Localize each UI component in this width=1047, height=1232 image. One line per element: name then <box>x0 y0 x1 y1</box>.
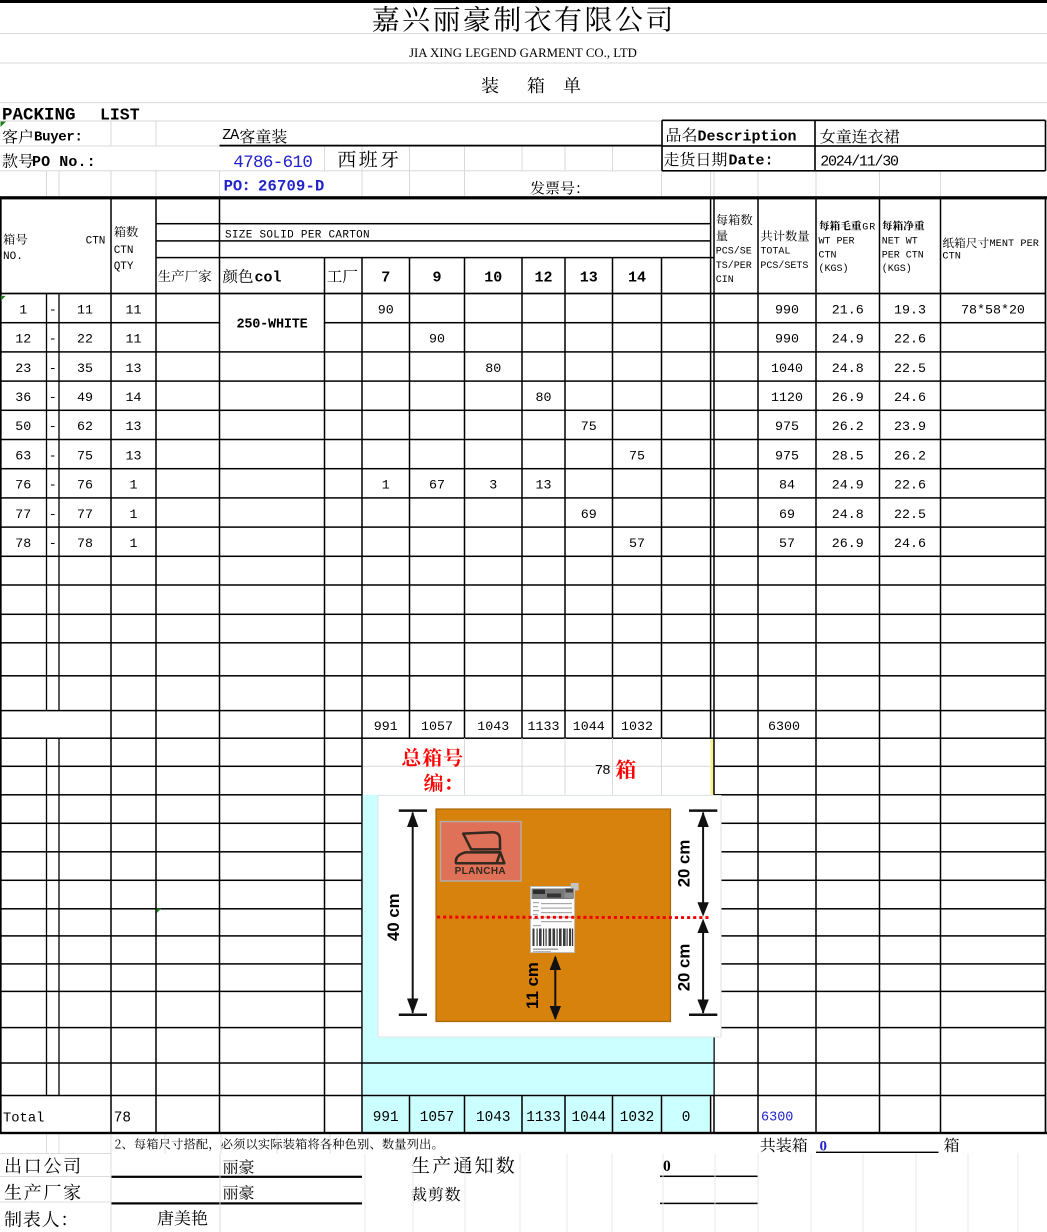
svg-text:22: 22 <box>77 332 93 347</box>
svg-text:67: 67 <box>429 478 445 493</box>
svg-text:1133: 1133 <box>528 719 560 734</box>
svg-text:9: 9 <box>432 270 441 287</box>
svg-text:63: 63 <box>15 448 31 463</box>
svg-text:1040: 1040 <box>771 361 803 376</box>
svg-text:NET WT: NET WT <box>882 237 918 248</box>
svg-text:-: - <box>49 332 57 347</box>
svg-text:PO No.:: PO No.: <box>32 154 96 171</box>
svg-text:ZA: ZA <box>222 127 239 144</box>
svg-text:49: 49 <box>77 390 93 405</box>
svg-text:24.6: 24.6 <box>894 536 926 551</box>
svg-text:57: 57 <box>629 536 645 551</box>
svg-text:JIA XING LEGEND GARMENT CO., L: JIA XING LEGEND GARMENT CO., LTD <box>409 46 637 60</box>
svg-text:CTN: CTN <box>86 235 106 247</box>
svg-text:QTY: QTY <box>114 261 134 273</box>
svg-text:1043: 1043 <box>476 1110 511 1126</box>
svg-text:69: 69 <box>581 507 597 522</box>
svg-text:1: 1 <box>19 302 27 317</box>
svg-text:90: 90 <box>429 332 445 347</box>
svg-text:13: 13 <box>126 448 142 463</box>
svg-text:CTN: CTN <box>114 245 134 257</box>
svg-text:75: 75 <box>77 448 93 463</box>
svg-text:24.9: 24.9 <box>832 332 864 347</box>
svg-text:1: 1 <box>130 507 138 522</box>
svg-text:1133: 1133 <box>526 1110 561 1126</box>
svg-text:-: - <box>49 419 57 434</box>
svg-text:990: 990 <box>775 332 799 347</box>
svg-text:PER CTN: PER CTN <box>882 251 924 262</box>
svg-text:11: 11 <box>126 332 142 347</box>
svg-text:22.5: 22.5 <box>894 361 926 376</box>
svg-text:Total: Total <box>3 1111 44 1127</box>
svg-text:80: 80 <box>536 390 552 405</box>
svg-text:22.6: 22.6 <box>894 478 926 493</box>
svg-text:19.3: 19.3 <box>894 302 926 317</box>
svg-text:24.8: 24.8 <box>832 361 864 376</box>
svg-text:1120: 1120 <box>771 390 803 405</box>
svg-text:-: - <box>49 361 57 376</box>
svg-text:250-WHITE: 250-WHITE <box>236 317 307 332</box>
svg-text:Buyer:: Buyer: <box>34 129 83 145</box>
svg-text:14: 14 <box>628 270 646 287</box>
svg-text:-: - <box>49 390 57 405</box>
svg-text:84: 84 <box>779 478 795 493</box>
svg-text:-: - <box>49 507 57 522</box>
svg-text:1057: 1057 <box>420 1110 455 1126</box>
svg-text:80: 80 <box>485 361 501 376</box>
svg-text:LIST: LIST <box>100 106 140 125</box>
svg-text:76: 76 <box>15 478 31 493</box>
svg-text:22.5: 22.5 <box>894 507 926 522</box>
svg-text:26.2: 26.2 <box>894 448 926 463</box>
svg-text:TS/PER: TS/PER <box>716 260 752 272</box>
svg-text:PLANCHA: PLANCHA <box>455 866 506 877</box>
svg-text:Date:: Date: <box>729 152 774 169</box>
svg-text:SIZE SOLID PER CARTON: SIZE SOLID PER CARTON <box>225 230 370 242</box>
svg-text:1032: 1032 <box>621 719 653 734</box>
svg-text:12: 12 <box>15 332 31 347</box>
svg-text:13: 13 <box>126 419 142 434</box>
svg-text:77: 77 <box>77 507 93 522</box>
svg-text:PCS/SETS: PCS/SETS <box>760 260 808 272</box>
svg-text:(KGS): (KGS) <box>819 263 849 275</box>
svg-text:26.9: 26.9 <box>832 536 864 551</box>
svg-text:78*58*20: 78*58*20 <box>961 302 1025 317</box>
svg-text:75: 75 <box>629 448 645 463</box>
svg-text:1043: 1043 <box>477 719 509 734</box>
svg-text:10: 10 <box>484 270 502 287</box>
svg-text:6300: 6300 <box>761 1111 793 1126</box>
svg-text:78: 78 <box>15 536 31 551</box>
svg-text:0: 0 <box>682 1110 691 1126</box>
svg-text:4786-610: 4786-610 <box>233 153 312 173</box>
svg-text:75: 75 <box>581 419 597 434</box>
svg-text:11: 11 <box>126 302 142 317</box>
svg-text:22.6: 22.6 <box>894 332 926 347</box>
svg-text:975: 975 <box>775 448 799 463</box>
svg-text:28.5: 28.5 <box>832 448 864 463</box>
svg-text:990: 990 <box>775 302 799 317</box>
svg-text:20 cm: 20 cm <box>675 944 694 992</box>
svg-text:CTN: CTN <box>819 251 837 262</box>
svg-text:991: 991 <box>373 1110 399 1126</box>
svg-text:7: 7 <box>381 270 390 287</box>
svg-text:1: 1 <box>130 478 138 493</box>
svg-text:12: 12 <box>534 270 552 287</box>
svg-text:90: 90 <box>378 302 394 317</box>
svg-text:PO: PO <box>224 178 243 196</box>
svg-text:975: 975 <box>775 419 799 434</box>
svg-text:MENT PER: MENT PER <box>990 238 1039 250</box>
svg-text:GR: GR <box>862 222 876 233</box>
svg-text:24.9: 24.9 <box>832 478 864 493</box>
svg-text:CTN: CTN <box>942 251 961 263</box>
svg-text:WT PER: WT PER <box>819 237 855 248</box>
svg-text:20 cm: 20 cm <box>675 840 694 888</box>
svg-text:24.6: 24.6 <box>894 390 926 405</box>
svg-text:-: - <box>49 448 57 463</box>
svg-text:13: 13 <box>126 361 142 376</box>
svg-text:13: 13 <box>580 270 598 287</box>
svg-text:Description: Description <box>698 128 797 145</box>
svg-text:13: 13 <box>536 478 552 493</box>
svg-text:11: 11 <box>77 302 93 317</box>
svg-text:76: 76 <box>77 478 93 493</box>
svg-text:3: 3 <box>489 478 497 493</box>
svg-text:col: col <box>255 270 282 287</box>
svg-text:26.9: 26.9 <box>832 390 864 405</box>
svg-text:1: 1 <box>382 478 390 493</box>
svg-text:24.8: 24.8 <box>832 507 864 522</box>
svg-text:36: 36 <box>15 390 31 405</box>
svg-text:TOTAL: TOTAL <box>760 246 790 257</box>
svg-text:(KGS): (KGS) <box>882 263 912 275</box>
svg-text:2024/11/30: 2024/11/30 <box>820 153 899 170</box>
svg-text:1032: 1032 <box>620 1110 655 1126</box>
svg-text:-: - <box>49 478 57 493</box>
svg-text:NO.: NO. <box>3 251 23 263</box>
svg-text:11 cm: 11 cm <box>523 962 542 1009</box>
svg-text:69: 69 <box>779 507 795 522</box>
svg-text:-: - <box>49 302 57 317</box>
svg-text:0: 0 <box>663 1158 671 1175</box>
svg-text:PACKING: PACKING <box>2 106 76 126</box>
svg-text:1057: 1057 <box>421 719 453 734</box>
svg-text:1044: 1044 <box>573 719 605 734</box>
svg-text:14: 14 <box>126 390 142 405</box>
svg-text:1044: 1044 <box>571 1110 606 1126</box>
svg-text:23: 23 <box>15 361 31 376</box>
svg-text:57: 57 <box>779 536 795 551</box>
svg-text:CIN: CIN <box>716 275 734 286</box>
svg-text:6300: 6300 <box>768 719 800 734</box>
svg-text:PCS/SE: PCS/SE <box>716 245 752 257</box>
svg-text:78: 78 <box>114 1111 131 1127</box>
svg-text:26709-D: 26709-D <box>258 178 325 196</box>
svg-text:77: 77 <box>15 507 31 522</box>
svg-text:-: - <box>49 536 57 551</box>
svg-text:21.6: 21.6 <box>832 302 864 317</box>
svg-text:26.2: 26.2 <box>832 419 864 434</box>
svg-text:1: 1 <box>130 536 138 551</box>
svg-text:50: 50 <box>15 419 31 434</box>
svg-text:78: 78 <box>77 536 93 551</box>
svg-text:62: 62 <box>77 419 93 434</box>
svg-text:23.9: 23.9 <box>894 419 926 434</box>
svg-text:991: 991 <box>374 719 398 734</box>
svg-text:78: 78 <box>595 763 610 779</box>
svg-text:40 cm: 40 cm <box>384 893 403 941</box>
svg-text:35: 35 <box>77 361 93 376</box>
